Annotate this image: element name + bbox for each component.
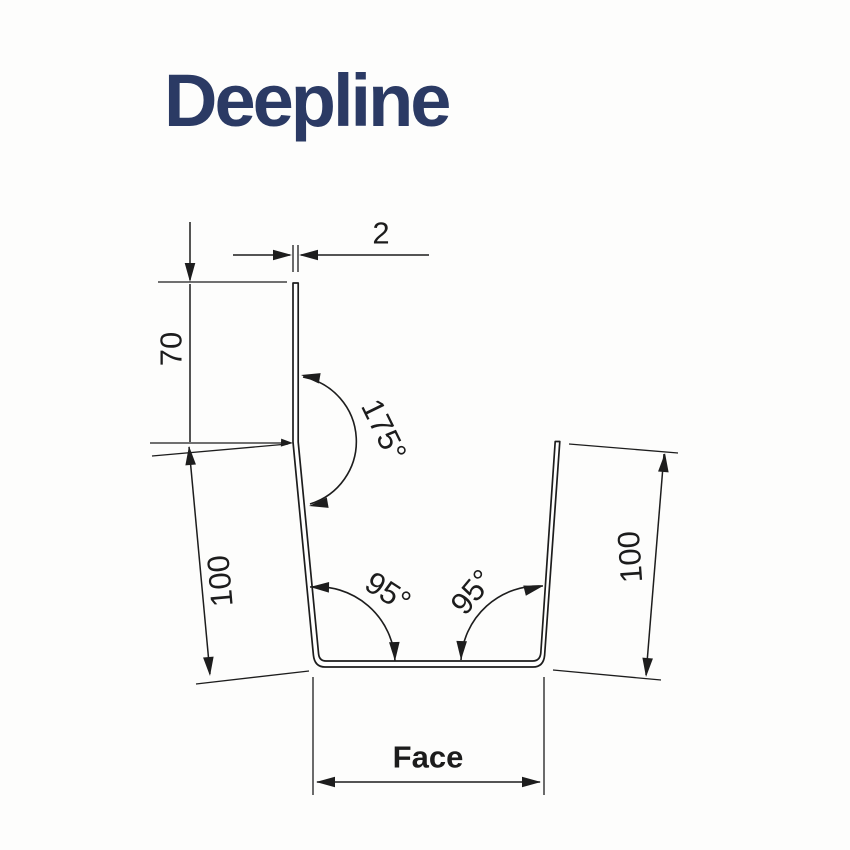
bottom-right-angle-dimension: 95°	[444, 563, 545, 660]
arrowhead	[389, 642, 400, 661]
top-angle-label: 175°	[354, 394, 414, 467]
arrowhead	[184, 446, 196, 466]
arrowhead	[456, 641, 467, 660]
arrowhead	[203, 657, 215, 677]
arrowhead	[523, 581, 544, 596]
right-side-label: 100	[611, 530, 650, 584]
gutter-profile-outline	[293, 283, 560, 667]
arrowhead	[185, 263, 196, 282]
arrowhead	[281, 439, 293, 447]
top-angle-dimension: 175°	[300, 370, 414, 511]
arrowhead	[316, 777, 335, 788]
right-side-dimension: 100	[553, 444, 678, 680]
thickness-label: 2	[372, 216, 389, 251]
deepline-profile-page: Deepline 2 70	[0, 0, 850, 850]
face-label: Face	[393, 740, 464, 775]
thickness-dimension: 2	[233, 216, 429, 273]
arrowhead	[273, 250, 292, 261]
left-side-dimension: 100	[184, 446, 309, 684]
arrowhead	[658, 453, 670, 473]
bottom-left-angle-label: 95°	[359, 565, 417, 620]
left-side-label: 100	[200, 554, 239, 609]
arrowhead	[641, 658, 653, 678]
upper-height-dimension: 70	[150, 222, 293, 456]
arrowhead	[522, 777, 541, 788]
bottom-left-angle-dimension: 95°	[310, 565, 417, 662]
face-width-dimension: Face	[313, 677, 544, 795]
upper-height-label: 70	[154, 332, 189, 366]
arrowhead	[299, 250, 318, 261]
bottom-right-angle-label: 95°	[444, 563, 501, 621]
profile-cross-section-drawing: 2 70 100 100	[0, 0, 850, 850]
